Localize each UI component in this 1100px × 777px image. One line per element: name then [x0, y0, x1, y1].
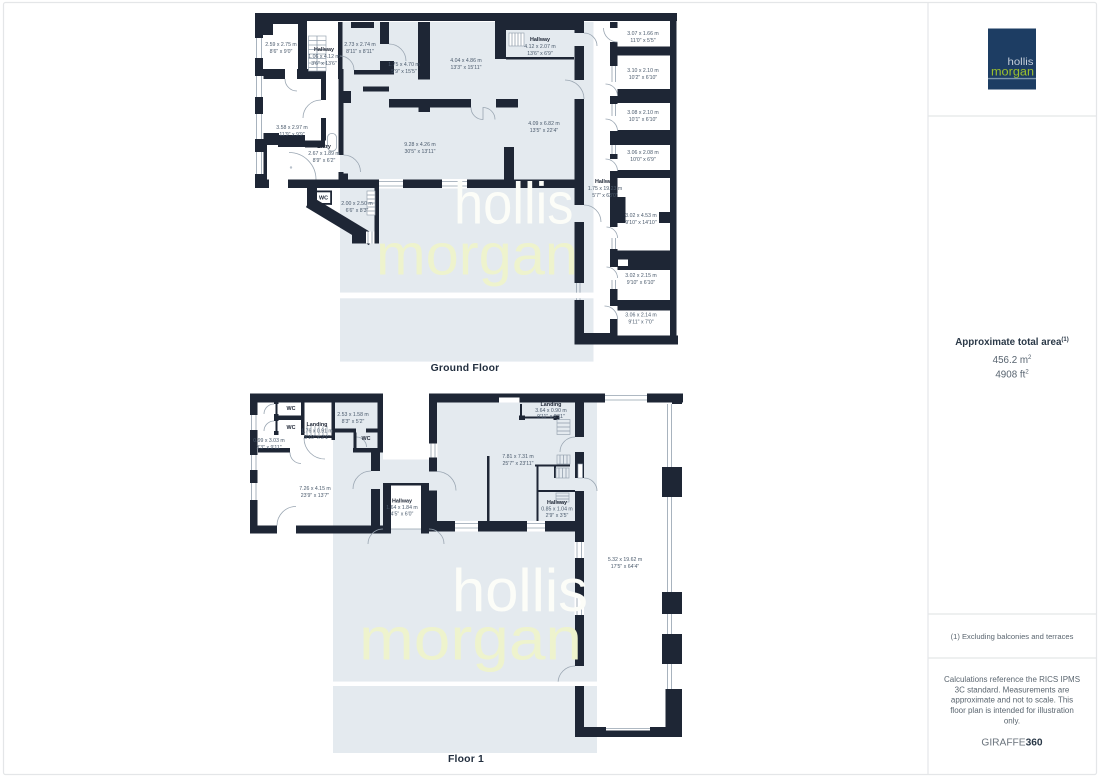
svg-text:3'3" x 9'11": 3'3" x 9'11": [256, 445, 281, 451]
svg-text:8'9" x 6'2": 8'9" x 6'2": [313, 158, 336, 164]
svg-text:4.04 x 4.86 m: 4.04 x 4.86 m: [450, 58, 481, 64]
svg-text:1.76 x 0.91 m: 1.76 x 0.91 m: [301, 429, 332, 435]
svg-text:4908 ft2: 4908 ft2: [995, 370, 1029, 381]
svg-text:9'10" x 6'10": 9'10" x 6'10": [627, 280, 656, 286]
svg-text:8'11" x 8'11": 8'11" x 8'11": [346, 49, 374, 55]
svg-text:3.10 x 2.10 m: 3.10 x 2.10 m: [627, 68, 658, 74]
svg-text:4.09 x 6.82 m: 4.09 x 6.82 m: [528, 121, 559, 127]
svg-text:Approximate total area(1): Approximate total area(1): [955, 337, 1069, 348]
svg-text:8'6" x 9'0": 8'6" x 9'0": [270, 49, 293, 55]
svg-text:6'6" x 8'3": 6'6" x 8'3": [346, 208, 369, 214]
svg-text:3C standard. Measurements are: 3C standard. Measurements are: [955, 685, 1070, 694]
svg-text:13'5" x 22'4": 13'5" x 22'4": [530, 128, 559, 134]
svg-text:1.06 x 4.12 m: 1.06 x 4.12 m: [308, 54, 339, 60]
svg-text:Hallway: Hallway: [314, 47, 334, 53]
svg-text:WC: WC: [362, 436, 371, 442]
svg-text:3'6" x 13'6": 3'6" x 13'6": [311, 61, 337, 67]
svg-text:only.: only.: [1004, 716, 1020, 725]
svg-text:3.58 x 2.97 m: 3.58 x 2.97 m: [276, 125, 307, 131]
svg-text:floor plan is intended for ill: floor plan is intended for illustration: [950, 706, 1074, 715]
svg-text:1.75 x 4.70 m: 1.75 x 4.70 m: [388, 62, 419, 68]
svg-text:Entry: Entry: [317, 144, 331, 150]
svg-text:9'10" x 14'10": 9'10" x 14'10": [625, 220, 656, 226]
svg-text:11'0" x 5'5": 11'0" x 5'5": [630, 38, 655, 44]
svg-text:4.12 x 2.07 m: 4.12 x 2.07 m: [524, 44, 555, 50]
svg-text:3.08 x 2.10 m: 3.08 x 2.10 m: [627, 110, 658, 116]
svg-text:5'7" x 63'0": 5'7" x 63'0": [592, 193, 618, 199]
svg-text:30'5" x 13'11": 30'5" x 13'11": [405, 149, 436, 155]
svg-text:3.06 x 2.08 m: 3.06 x 2.08 m: [627, 150, 658, 156]
svg-text:17'5" x 64'4": 17'5" x 64'4": [611, 564, 640, 570]
svg-text:Hallway: Hallway: [595, 179, 615, 185]
svg-text:11'9" x 9'9": 11'9" x 9'9": [279, 132, 304, 138]
svg-text:approximate and not to scale.: approximate and not to scale. This: [951, 696, 1073, 705]
svg-text:GIRAFFE360: GIRAFFE360: [981, 738, 1042, 749]
svg-text:7.81 x 7.31 m: 7.81 x 7.31 m: [502, 454, 533, 460]
svg-text:Floor 1: Floor 1: [448, 754, 484, 765]
svg-text:WC: WC: [319, 196, 328, 202]
svg-text:456.2 m2: 456.2 m2: [993, 355, 1032, 366]
svg-text:3.07 x 1.66 m: 3.07 x 1.66 m: [627, 31, 658, 37]
svg-text:5'9" x 15'5": 5'9" x 15'5": [391, 69, 417, 75]
svg-text:Hallway: Hallway: [547, 500, 567, 506]
svg-text:Calculations reference the RIC: Calculations reference the RICS IPMS: [944, 675, 1080, 684]
svg-text:morgan: morgan: [991, 67, 1034, 79]
svg-text:3.02 x 4.53 m: 3.02 x 4.53 m: [625, 213, 656, 219]
svg-text:9.28 x 4.26 m: 9.28 x 4.26 m: [404, 142, 435, 148]
svg-text:2.53 x 1.58 m: 2.53 x 1.58 m: [337, 412, 368, 418]
svg-text:Hallway: Hallway: [530, 37, 550, 43]
svg-text:Landing: Landing: [307, 422, 328, 428]
svg-text:morgan: morgan: [376, 223, 578, 288]
svg-text:0.85 x 1.04 m: 0.85 x 1.04 m: [541, 507, 572, 513]
svg-text:10'0" x 6'9": 10'0" x 6'9": [630, 157, 656, 163]
svg-text:23'9" x 13'7": 23'9" x 13'7": [301, 493, 330, 499]
svg-text:8'3" x 5'2": 8'3" x 5'2": [342, 419, 365, 425]
svg-text:13'6" x 6'9": 13'6" x 6'9": [527, 51, 553, 57]
svg-text:WC: WC: [287, 425, 296, 431]
svg-text:7.26 x 4.15 m: 7.26 x 4.15 m: [299, 486, 330, 492]
svg-text:3.02 x 2.15 m: 3.02 x 2.15 m: [625, 273, 656, 279]
svg-text:2'9" x 3'5": 2'9" x 3'5": [546, 513, 569, 519]
svg-text:9'11" x 7'0": 9'11" x 7'0": [628, 320, 653, 326]
svg-text:2.59 x 2.75 m: 2.59 x 2.75 m: [265, 42, 296, 48]
svg-text:(1) Excluding balconies and te: (1) Excluding balconies and terraces: [951, 632, 1074, 641]
svg-text:Ground Floor: Ground Floor: [431, 363, 500, 374]
svg-text:10'1" x 6'10": 10'1" x 6'10": [629, 117, 658, 123]
svg-text:Hallway: Hallway: [392, 499, 412, 505]
svg-text:morgan: morgan: [359, 606, 582, 673]
svg-text:3.06 x 2.14 m: 3.06 x 2.14 m: [625, 313, 656, 319]
svg-text:4'5" x 6'0": 4'5" x 6'0": [391, 512, 414, 518]
svg-text:1.64 x 1.84 m: 1.64 x 1.84 m: [386, 505, 417, 511]
svg-text:5.32 x 19.62 m: 5.32 x 19.62 m: [608, 557, 642, 563]
svg-text:WC: WC: [287, 406, 296, 412]
svg-text:9'11" x 2'11": 9'11" x 2'11": [537, 414, 565, 420]
svg-text:2.00 x 2.50 m: 2.00 x 2.50 m: [341, 201, 372, 207]
svg-text:2.73 x 2.74 m: 2.73 x 2.74 m: [344, 42, 375, 48]
svg-text:5'10" x 2'1": 5'10" x 2'1": [304, 435, 330, 441]
svg-text:1.75 x 19.23 m: 1.75 x 19.23 m: [588, 186, 622, 192]
svg-text:13'3" x 15'11": 13'3" x 15'11": [451, 65, 482, 71]
svg-text:25'7" x 23'11": 25'7" x 23'11": [503, 461, 534, 467]
svg-text:10'2" x 6'10": 10'2" x 6'10": [629, 75, 658, 81]
svg-text:2.67 x 1.89 m: 2.67 x 1.89 m: [308, 151, 339, 157]
svg-text:0.99 x 3.03 m: 0.99 x 3.03 m: [253, 438, 284, 444]
